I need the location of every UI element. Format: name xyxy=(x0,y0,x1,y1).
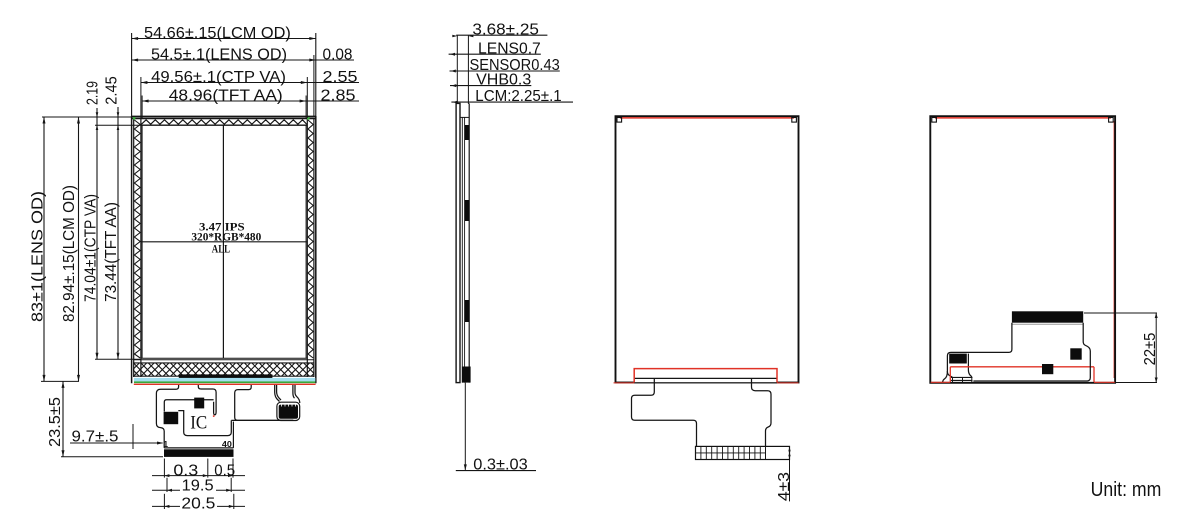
svg-text:Unit: mm: Unit: mm xyxy=(1091,479,1162,501)
svg-text:1: 1 xyxy=(164,439,169,449)
svg-text:2.55: 2.55 xyxy=(323,68,358,86)
svg-text:49.56±.1(CTP VA): 49.56±.1(CTP VA) xyxy=(151,68,286,85)
svg-text:2.85: 2.85 xyxy=(321,86,356,104)
svg-text:20.5: 20.5 xyxy=(181,495,215,512)
svg-text:0.08: 0.08 xyxy=(323,46,353,63)
svg-text:19.5: 19.5 xyxy=(182,478,214,494)
svg-text:0.3±.03: 0.3±.03 xyxy=(473,457,528,474)
svg-text:54.5±.1(LENS OD): 54.5±.1(LENS OD) xyxy=(151,47,287,64)
svg-text:74.04±1(CTP VA): 74.04±1(CTP VA) xyxy=(83,194,100,302)
svg-text:73.44(TFT AA): 73.44(TFT AA) xyxy=(103,202,120,302)
svg-text:83±1(LENS OD): 83±1(LENS OD) xyxy=(29,191,47,322)
svg-text:82.94±.15(LCM OD): 82.94±.15(LCM OD) xyxy=(61,185,78,322)
svg-text:LENS0.7: LENS0.7 xyxy=(478,40,541,57)
svg-text:VHB0.3: VHB0.3 xyxy=(476,72,531,89)
svg-text:0.5: 0.5 xyxy=(214,462,235,479)
svg-text:0.3: 0.3 xyxy=(173,461,198,479)
svg-text:2.19: 2.19 xyxy=(83,81,101,105)
svg-text:48.96(TFT AA): 48.96(TFT AA) xyxy=(169,87,283,104)
svg-text:54.66±.15(LCM OD): 54.66±.15(LCM OD) xyxy=(144,25,291,42)
svg-text:LCM:2.25±.1: LCM:2.25±.1 xyxy=(475,88,561,105)
svg-text:4±3: 4±3 xyxy=(775,472,793,501)
svg-text:9.7±.5: 9.7±.5 xyxy=(72,428,119,445)
svg-text:IC: IC xyxy=(190,412,207,433)
svg-text:3.68±.25: 3.68±.25 xyxy=(472,21,539,38)
svg-text:22±5: 22±5 xyxy=(1142,333,1159,366)
svg-text:320*RGB*480: 320*RGB*480 xyxy=(191,232,261,244)
svg-text:40: 40 xyxy=(222,439,232,449)
svg-text:ALL: ALL xyxy=(212,244,230,256)
svg-text:2.45: 2.45 xyxy=(103,76,120,104)
svg-text:23.5±5: 23.5±5 xyxy=(47,397,64,447)
